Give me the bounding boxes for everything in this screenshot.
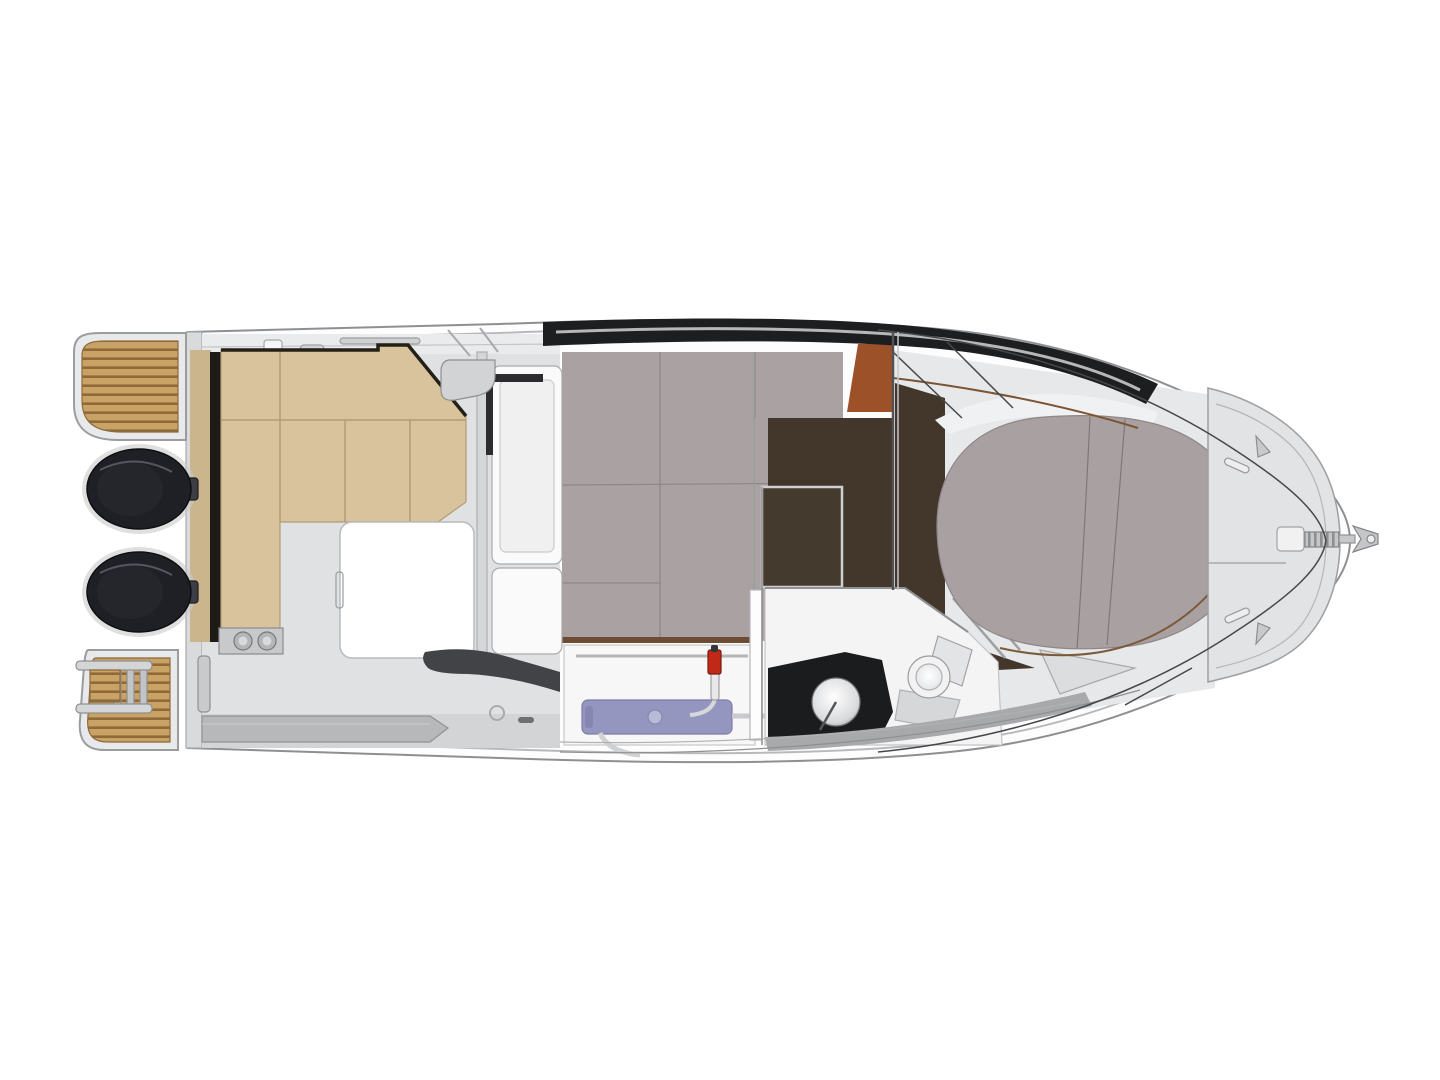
outboard-engine-port xyxy=(82,444,198,534)
engine-cowl-inner xyxy=(97,462,163,516)
faucet-tube xyxy=(711,672,719,700)
v-berth-group xyxy=(937,416,1242,656)
backrest-shadow-gap xyxy=(210,352,221,642)
ladder-rail-bottom xyxy=(76,704,152,713)
floor-hatch xyxy=(762,487,842,587)
ladder-rail-top xyxy=(76,661,152,670)
toilet-bowl xyxy=(916,664,942,690)
anchor-roller xyxy=(1305,532,1339,547)
ladder-teak-step xyxy=(90,670,120,702)
carpet-edge-trim xyxy=(562,637,754,643)
cockpit-table xyxy=(340,522,474,658)
wheelhouse-pillar xyxy=(477,352,487,654)
sink-drain xyxy=(648,710,662,724)
boat-floor-plan xyxy=(0,0,1440,1080)
cupholder-1-inner xyxy=(239,637,248,646)
stern-step-molding xyxy=(202,716,448,742)
v-berth xyxy=(937,416,1242,649)
stern xyxy=(74,333,198,750)
anchor-hub xyxy=(1367,535,1375,543)
galley xyxy=(564,645,770,755)
outboard-engine-starboard xyxy=(82,547,198,637)
cockpit-furniture xyxy=(190,328,562,692)
engine-cowl-inner xyxy=(97,565,163,619)
wheelhouse-door-panel xyxy=(500,380,554,552)
cupholder-2-inner xyxy=(263,637,272,646)
grab-rail xyxy=(340,338,420,344)
sink-unit-notch xyxy=(585,706,593,728)
swim-platform-port-teak xyxy=(82,341,178,432)
faucet-red-handle xyxy=(708,650,721,674)
head-door-jamb xyxy=(750,590,762,740)
boat-floor-plan-canvas xyxy=(0,0,1440,1080)
wheelhouse-door-lower xyxy=(492,568,562,654)
windlass-box xyxy=(1277,527,1304,551)
anchor-shaft xyxy=(1339,535,1355,543)
gate-stanchion xyxy=(198,656,210,712)
faucet-cap xyxy=(711,645,718,652)
deck-latch xyxy=(518,717,534,723)
bow-deck-group xyxy=(1208,388,1378,682)
